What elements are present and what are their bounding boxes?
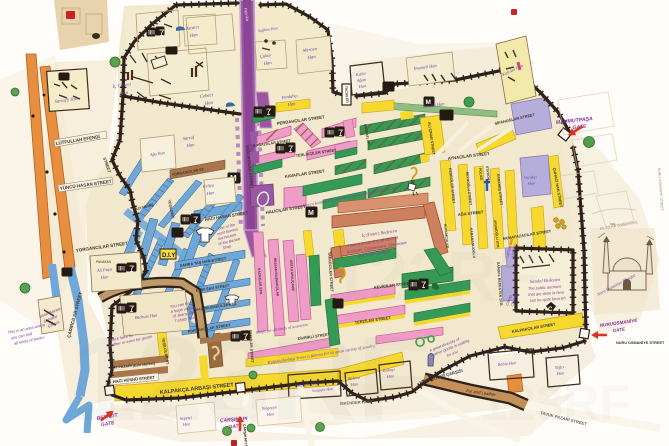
svg-text:Han: Han [100, 274, 110, 280]
svg-text:NURU OSMANİYE STREET: NURU OSMANİYE STREET [616, 341, 665, 345]
svg-text:M: M [308, 210, 314, 217]
svg-text:123RF: 123RF [70, 312, 430, 446]
svg-text:D.I.Y: D.I.Y [162, 253, 175, 259]
svg-text:123RF: 123RF [480, 375, 630, 431]
svg-text:123RF: 123RF [330, 237, 540, 315]
svg-text:Varakçı: Varakçı [524, 174, 537, 180]
svg-text:C: C [548, 307, 553, 313]
svg-text:Han: Han [527, 181, 536, 187]
svg-text:Yağcı: Yağcı [555, 364, 565, 370]
svg-text:NURU OSMANİYE STREET: NURU OSMANİYE STREET [657, 168, 665, 211]
svg-text:GATE: GATE [612, 326, 626, 333]
svg-text:PANAYAN: PANAYAN [96, 260, 112, 264]
